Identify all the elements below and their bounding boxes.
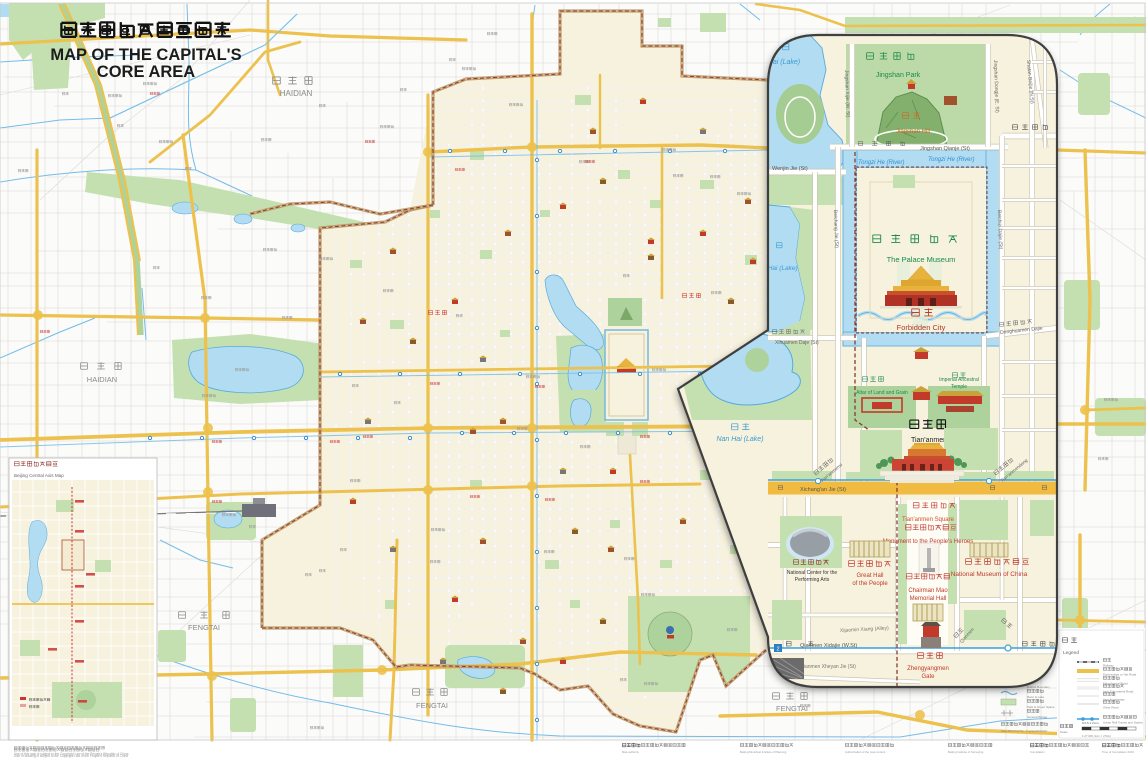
svg-text:Wenjin Jie (St): Wenjin Jie (St) [772,166,808,172]
svg-text:Nan Hai (Lake): Nan Hai (Lake) [716,436,763,443]
svg-text:HAIDIAN: HAIDIAN [280,89,313,98]
svg-text:Scale: Scale [1060,730,1068,734]
svg-text:FENGTAI: FENGTAI [416,701,448,710]
svg-text:Zhengyangmen: Zhengyangmen [907,666,949,672]
svg-text:FENGTAI: FENGTAI [188,623,220,632]
svg-text:Altar of Land and Grain: Altar of Land and Grain [856,390,908,396]
svg-text:National Center for the: National Center for the [787,570,838,576]
svg-text:Expressway or Nat Road: Expressway or Nat Road [1103,673,1137,677]
svg-text:Compilation: Compilation [1030,750,1045,754]
svg-text:MAP OF THE CAPITAL'S: MAP OF THE CAPITAL'S [50,46,241,64]
svg-text:Chairman Mao: Chairman Mao [908,588,948,594]
svg-text:Jingshan Park: Jingshan Park [876,72,921,79]
svg-text:Tian'anmen: Tian'anmen [911,437,947,444]
svg-text:Inter Sub-arterial Road: Inter Sub-arterial Road [1103,690,1134,694]
svg-text:Forbidden City: Forbidden City [897,323,946,332]
svg-text:Use of this map is subject to: Use of this map is subject to the Copyri… [14,752,129,756]
svg-text:Beijing Central Axis Map: Beijing Central Axis Map [14,473,64,478]
svg-text:Imperial Ancestral: Imperial Ancestral [939,377,979,383]
svg-text:Park & Green Space: Park & Green Space [1027,705,1055,709]
svg-text:River & Lake: River & Lake [1027,695,1045,699]
svg-text:National Museum of China: National Museum of China [951,571,1028,578]
svg-text:Time of Compilation 2019: Time of Compilation 2019 [1102,750,1134,754]
svg-text:Memorial Hall: Memorial Hall [910,596,947,602]
svg-text:HAIDIAN: HAIDIAN [87,375,117,384]
svg-text:of the People: of the People [852,581,888,587]
svg-text:Map authority: Map authority [622,750,640,754]
svg-text:Beijing Institute of Surveying: Beijing Institute of Surveying [948,750,984,754]
svg-text:Beijing Municipal Institute of: Beijing Municipal Institute of Planning [740,750,787,754]
svg-text:2: 2 [776,647,779,653]
svg-text:Legend: Legend [1063,650,1079,656]
svg-text:Jingshan Qianje (St): Jingshan Qianje (St) [920,146,970,152]
svg-text:Xichang'an Jie (St): Xichang'an Jie (St) [800,487,846,493]
svg-text:District Boundary: District Boundary [1027,685,1050,689]
svg-text:Jingshan Hill: Jingshan Hill [896,129,930,135]
svg-text:1:27 000 (1cm = 270m): 1:27 000 (1cm = 270m) [1082,734,1111,738]
svg-text:FENGTAI: FENGTAI [776,704,808,713]
svg-text:General Bridge: General Bridge [1027,715,1048,719]
svg-text:Qianmen Xheyan Jie (St): Qianmen Xheyan Jie (St) [800,664,856,670]
svg-text:Tongzi He (River): Tongzi He (River) [858,160,904,166]
svg-text:Map Approval No: JingS(2019)01: Map Approval No: JingS(2019)016 [1001,729,1047,733]
svg-text:Gate: Gate [921,674,935,680]
svg-text:The Palace Museum: The Palace Museum [887,255,956,264]
svg-text:Urban Rail Transit and Station: Urban Rail Transit and Station [1103,721,1143,725]
svg-text:Main Arterial Road: Main Arterial Road [1103,682,1128,686]
svg-text:Other Road: Other Road [1103,706,1119,710]
svg-text:0 0.5 1 2 km: 0 0.5 1 2 km [1082,721,1099,725]
svg-text:Xihuamen Daje (St): Xihuamen Daje (St) [775,340,819,346]
svg-text:Performing Arts: Performing Arts [795,577,830,583]
svg-text:Great Hall: Great Hall [856,573,883,579]
svg-text:CORE AREA: CORE AREA [97,63,195,81]
svg-text:Tian'anmen Square: Tian'anmen Square [902,517,955,523]
svg-text:Authorization of the map conte: Authorization of the map content [845,750,885,754]
svg-text:Railway: Railway [1103,664,1114,668]
svg-text:Tongzi He (River): Tongzi He (River) [928,157,974,163]
svg-text:Temple: Temple [951,384,967,390]
